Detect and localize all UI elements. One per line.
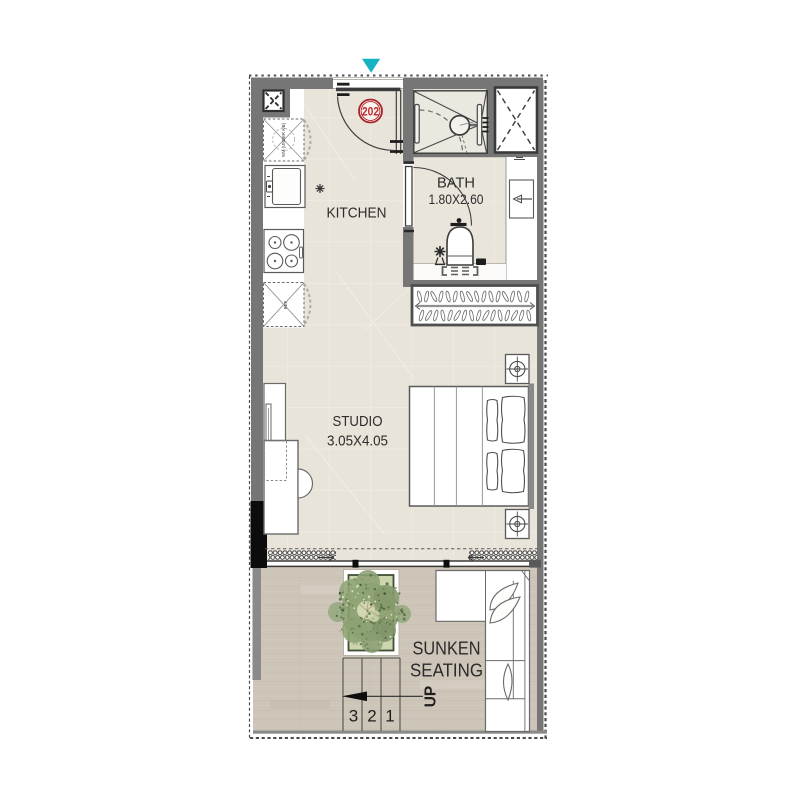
svg-text:WM (UNDER A/B): WM (UNDER A/B) [281, 122, 286, 157]
svg-text:3: 3 [349, 707, 358, 726]
svg-text:2: 2 [367, 707, 376, 726]
svg-text:KITCHEN: KITCHEN [327, 206, 387, 222]
svg-text:UP: UP [423, 686, 440, 708]
svg-text:REF: REF [283, 300, 288, 309]
svg-text:SEATING: SEATING [410, 661, 483, 681]
svg-text:1: 1 [385, 707, 394, 726]
svg-text:STUDIO: STUDIO [333, 414, 383, 430]
svg-text:1.80X2.60: 1.80X2.60 [429, 191, 484, 207]
svg-text:SUNKEN: SUNKEN [413, 639, 481, 659]
svg-text:202: 202 [362, 106, 379, 118]
svg-text:BATH: BATH [437, 176, 475, 192]
svg-text:3.05X4.05: 3.05X4.05 [327, 433, 388, 450]
